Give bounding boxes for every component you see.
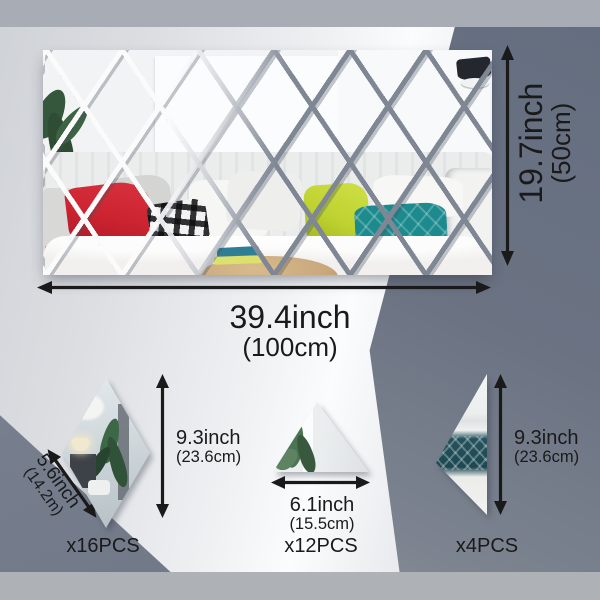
reflected-lamp <box>72 438 89 451</box>
reflected-flowers <box>70 394 104 420</box>
white-pillow <box>225 169 303 232</box>
triangle-piece <box>273 402 369 472</box>
ceiling-lamp-ring <box>461 78 489 88</box>
reflected-vase <box>88 480 110 495</box>
half-diamond-mirror <box>436 374 487 515</box>
main-height-label: 19.7inch (50cm) <box>515 63 575 223</box>
rhombus-piece <box>62 378 150 528</box>
rhombus-height-arrow <box>154 374 171 518</box>
half-diamond-piece <box>436 374 487 515</box>
main-width-arrow <box>37 279 491 296</box>
triangle-width-metric: (15.5cm) <box>262 516 382 533</box>
main-mirror-panel <box>43 50 492 275</box>
reflected-living-room <box>43 50 492 275</box>
main-width-label: 39.4inch (100cm) <box>140 301 440 361</box>
rhombus-mirror <box>62 378 150 528</box>
triangle-width-value: 6.1inch <box>262 495 382 516</box>
background-bottom-band <box>0 572 600 600</box>
half-diamond-height-metric: (23.6cm) <box>514 449 579 466</box>
main-width-value: 39.4inch <box>140 301 440 334</box>
triangle-mirror <box>273 402 369 472</box>
half-diamond-count-label: x4PCS <box>442 535 532 558</box>
mirror-sticker-size-diagram: 39.4inch (100cm) 19.7inch (50cm) 9.3inch… <box>0 0 600 600</box>
rhombus-height-metric: (23.6cm) <box>176 449 241 466</box>
background-top-band <box>0 0 600 27</box>
rhombus-count-label: x16PCS <box>58 535 148 558</box>
triangle-width-label: 6.1inch (15.5cm) <box>262 495 382 533</box>
triangle-count-label: x12PCS <box>276 535 366 558</box>
reflected-teal-pillow <box>436 436 487 470</box>
rhombus-height-value: 9.3inch <box>176 428 241 449</box>
half-diamond-height-label: 9.3inch (23.6cm) <box>514 428 579 466</box>
triangle-width-arrow <box>271 474 370 491</box>
main-height-value: 19.7inch <box>515 63 548 223</box>
main-width-metric: (100cm) <box>140 334 440 361</box>
half-diamond-height-arrow <box>492 374 509 515</box>
main-height-metric: (50cm) <box>548 63 575 223</box>
book-stack <box>214 255 262 265</box>
rhombus-height-label: 9.3inch (23.6cm) <box>176 428 241 466</box>
half-diamond-height-value: 9.3inch <box>514 428 579 449</box>
